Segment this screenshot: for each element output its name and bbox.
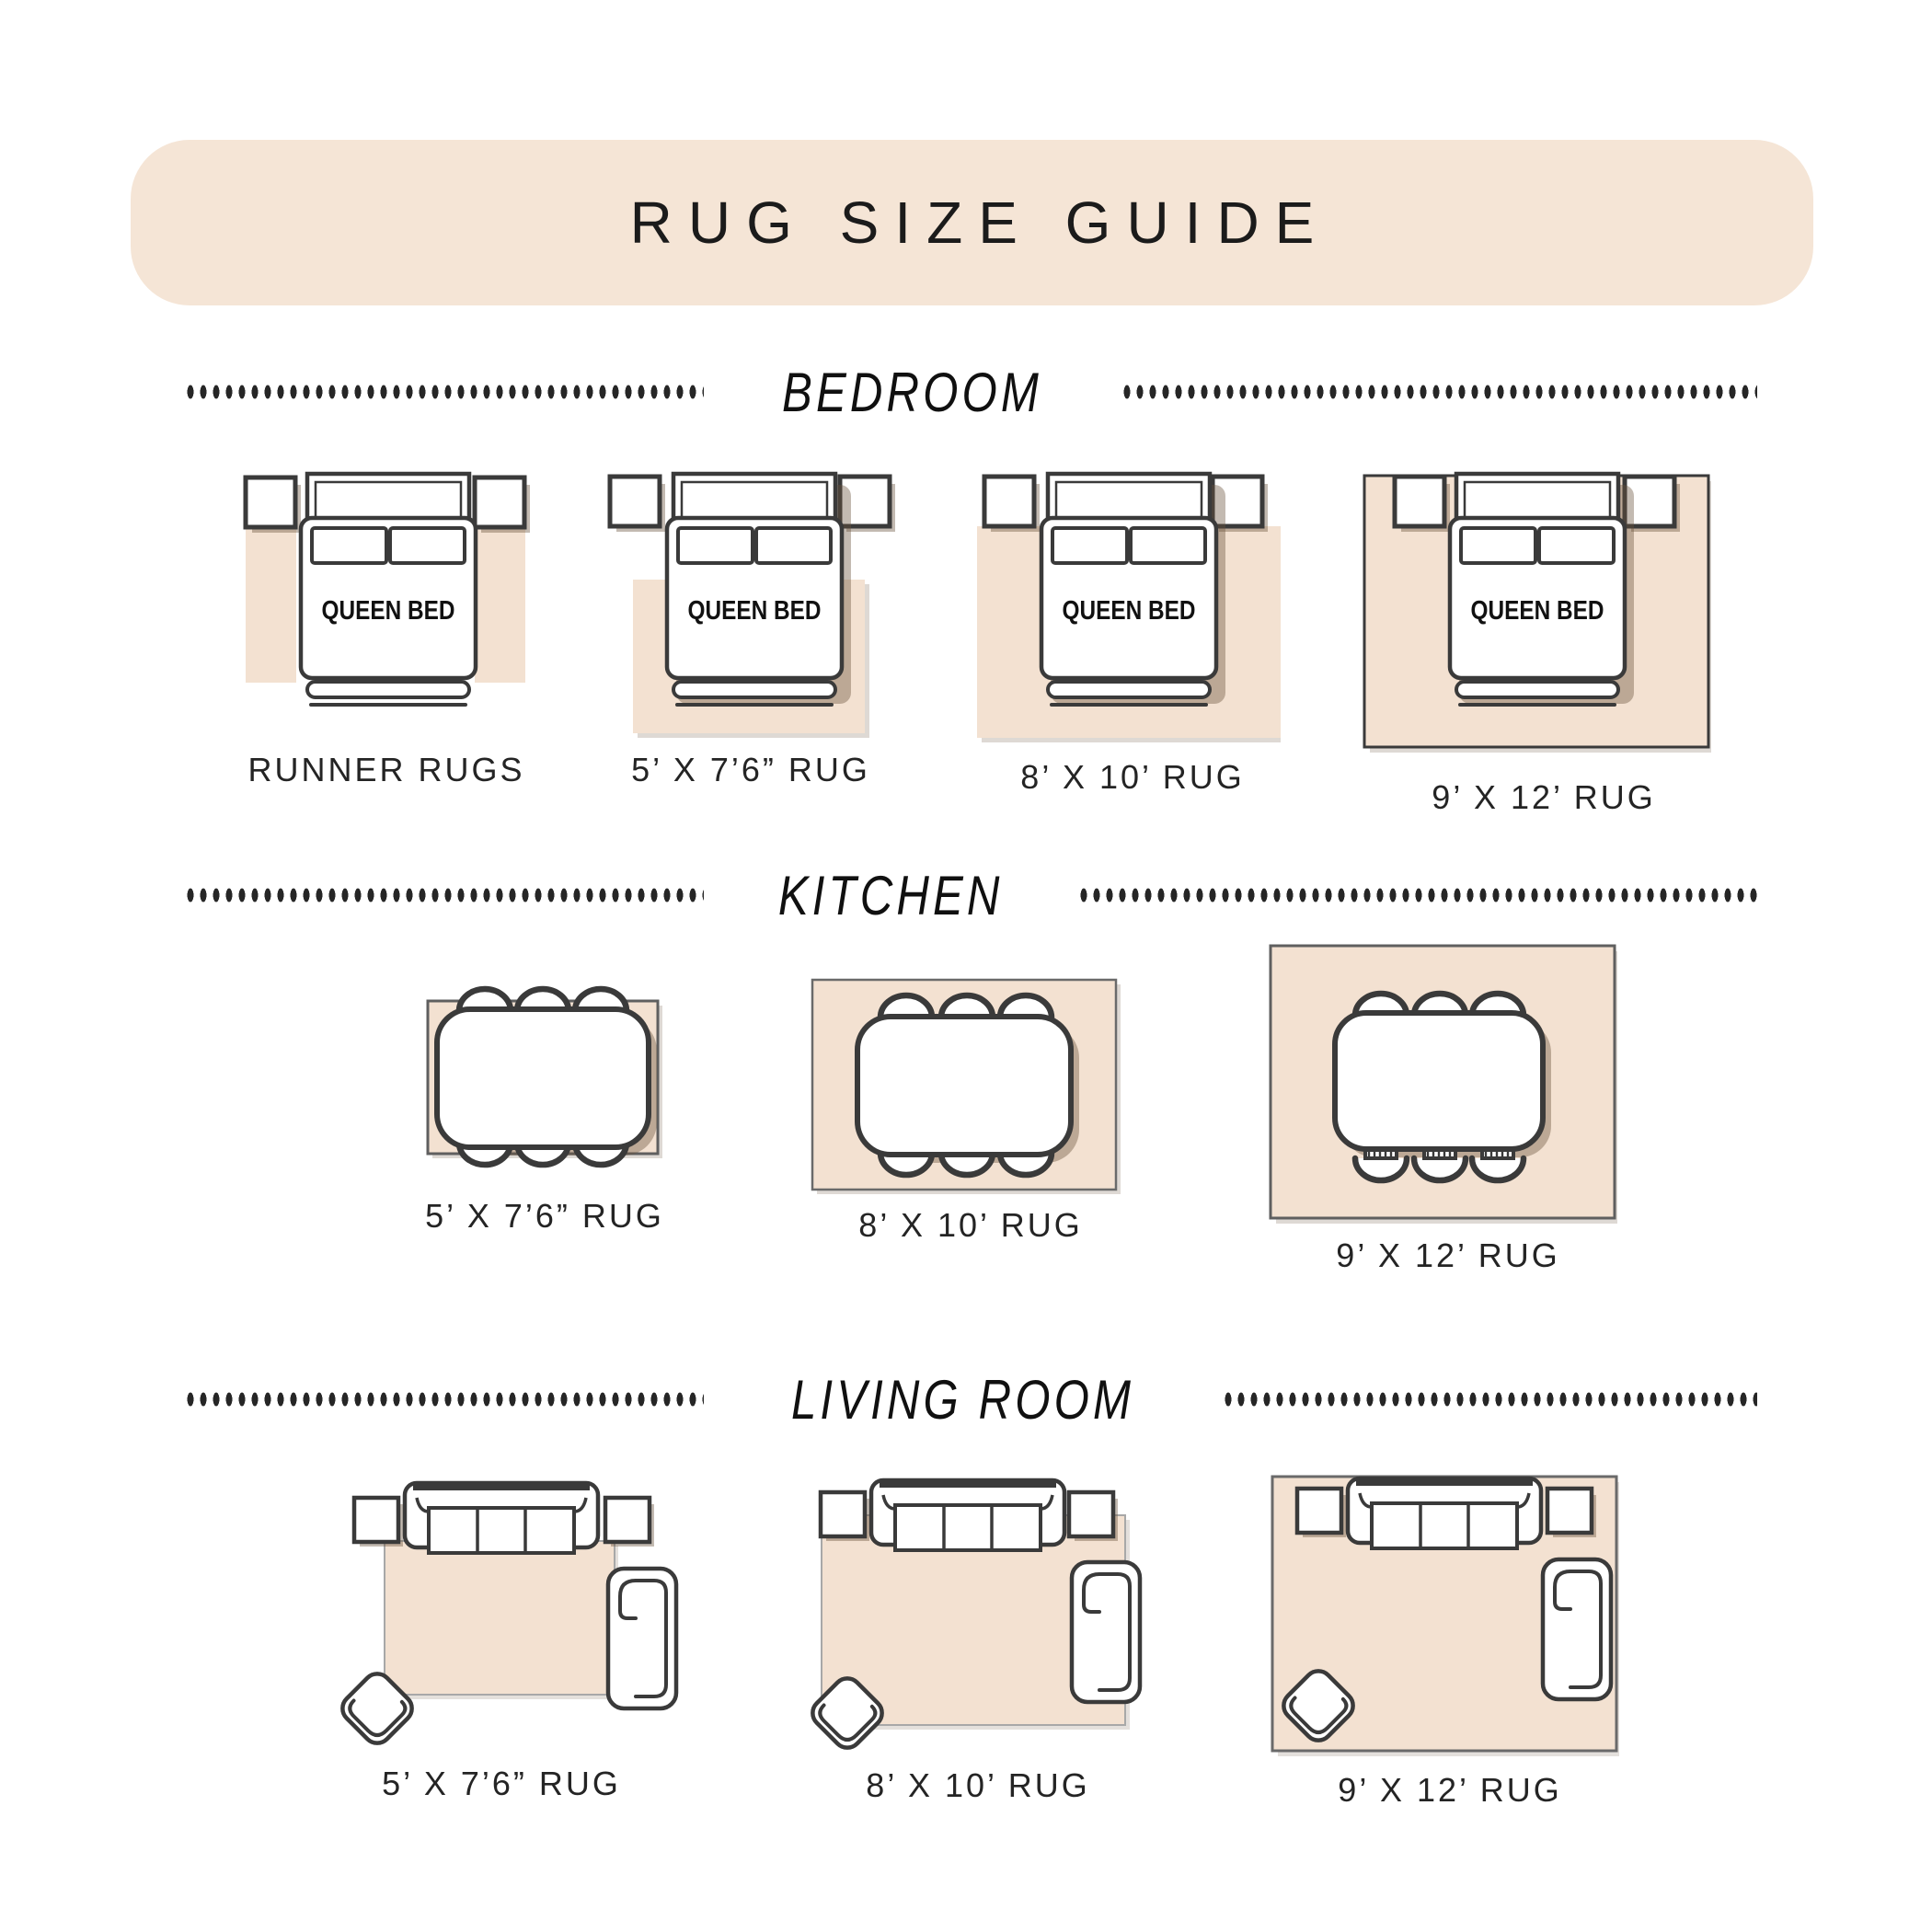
dotted-rule-right [1121, 385, 1757, 399]
bedroom-9x12-diagram: QUEEN BED [1362, 469, 1711, 761]
rug-size-label: 8’ X 10’ RUG [1020, 758, 1244, 797]
page-title: RUG SIZE GUIDE [615, 189, 1330, 257]
dotted-rule-right [1222, 1392, 1757, 1407]
dotted-rule-left [184, 385, 704, 399]
bed-label: QUEEN BED [322, 596, 455, 626]
nightstand [246, 477, 301, 533]
dotted-rule-left [184, 888, 704, 903]
area-rug [385, 1541, 615, 1695]
rug-size-label: 5’ X 7’6” RUG [425, 1197, 664, 1236]
side-table [821, 1492, 869, 1541]
nightstand [984, 477, 1040, 532]
nightstand [475, 477, 530, 533]
rug-size-label: RUNNER RUGS [247, 751, 524, 789]
queen-bed: QUEEN BED [1450, 474, 1625, 705]
sofa [871, 1480, 1064, 1550]
nightstand [1395, 477, 1450, 532]
kitchen-9x12-diagram [1268, 940, 1617, 1232]
living-room-8x10-diagram [802, 1470, 1152, 1783]
section-header-kitchen: KITCHEN [184, 865, 1757, 926]
side-table [354, 1498, 403, 1547]
kitchen-5x76-diagram [423, 966, 662, 1201]
banner: RUG SIZE GUIDE [131, 140, 1813, 305]
section-header-bedroom: BEDROOM [184, 362, 1757, 422]
section-title-kitchen: KITCHEN [778, 864, 1004, 927]
bed-label: QUEEN BED [1471, 596, 1604, 626]
bedroom-8x10-diagram: QUEEN BED [977, 469, 1281, 761]
bedroom-runner-rugs-diagram: QUEEN BED [241, 469, 535, 718]
rug-size-label: 5’ X 7’6” RUG [382, 1765, 621, 1803]
rug-size-label: 9’ X 12’ RUG [1336, 1236, 1559, 1275]
dotted-rule-left [184, 1392, 704, 1407]
living-room-9x12-diagram [1270, 1470, 1619, 1771]
rug-size-label: 8’ X 10’ RUG [858, 1206, 1082, 1245]
bed-label: QUEEN BED [1063, 596, 1196, 626]
rug-size-label: 9’ X 12’ RUG [1338, 1771, 1561, 1810]
dotted-rule-right [1077, 888, 1757, 903]
queen-bed: QUEEN BED [1041, 474, 1216, 705]
rug-size-label: 5’ X 7’6” RUG [631, 751, 870, 789]
side-table [1069, 1492, 1118, 1541]
runner-rug-left [246, 512, 296, 683]
bed-label: QUEEN BED [688, 596, 822, 626]
runner-rug-right [475, 512, 525, 683]
dining-table [1335, 1013, 1543, 1149]
sofa [1348, 1478, 1541, 1548]
nightstand [610, 477, 665, 532]
rug-size-guide-page: { "title": "RUG SIZE GUIDE", "bed_label"… [0, 0, 1932, 1932]
sofa [405, 1483, 598, 1553]
queen-bed: QUEEN BED [301, 474, 476, 705]
chaise [608, 1569, 676, 1708]
rug-size-label: 8’ X 10’ RUG [866, 1766, 1089, 1805]
side-table [1297, 1489, 1346, 1537]
kitchen-8x10-diagram [808, 973, 1121, 1203]
living-room-5x76-diagram [333, 1470, 687, 1783]
chaise [1543, 1559, 1611, 1699]
dining-table [437, 1009, 649, 1147]
section-header-living-room: LIVING ROOM [184, 1369, 1757, 1430]
side-table [1547, 1489, 1596, 1537]
chaise [1072, 1562, 1140, 1702]
section-title-bedroom: BEDROOM [782, 361, 1042, 424]
section-title-living-room: LIVING ROOM [791, 1368, 1134, 1432]
side-table [605, 1498, 654, 1547]
bedroom-5x76-diagram: QUEEN BED [603, 469, 906, 750]
dining-table [857, 1017, 1071, 1155]
rug-size-label: 9’ X 12’ RUG [1432, 778, 1655, 817]
queen-bed: QUEEN BED [667, 474, 842, 705]
